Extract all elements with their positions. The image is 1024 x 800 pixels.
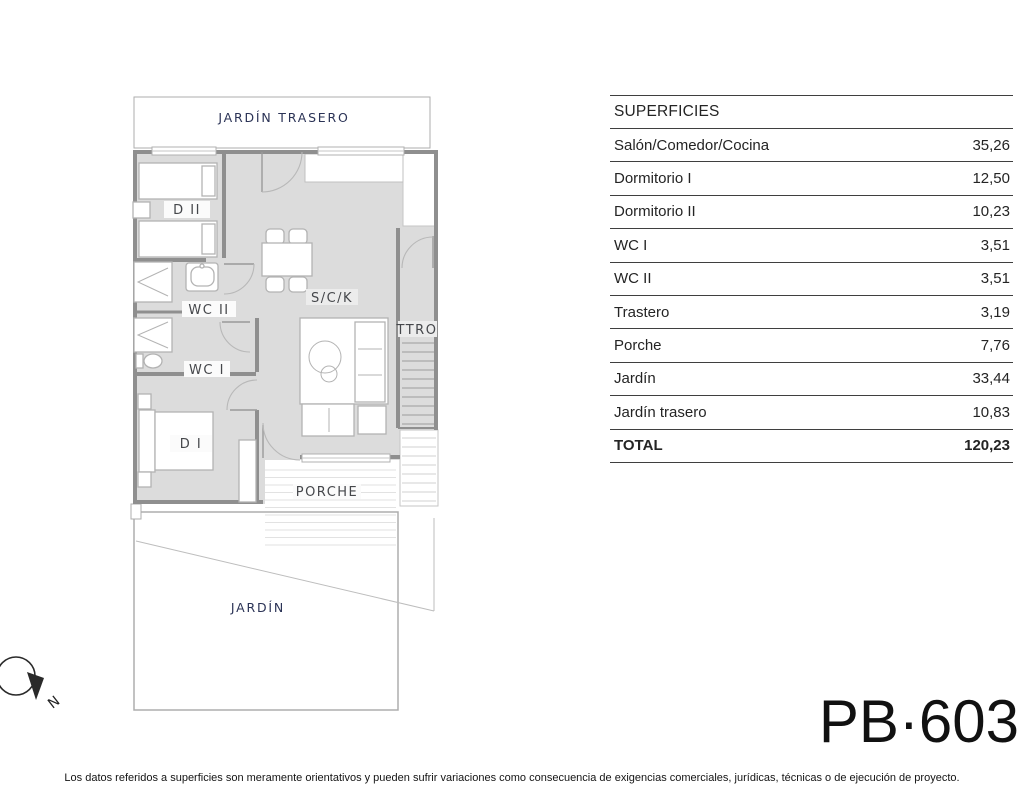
boundary-line bbox=[136, 518, 434, 611]
kitchen-counter bbox=[305, 154, 403, 182]
row-value: 3,19 bbox=[981, 304, 1010, 321]
surface-table: SUPERFICIES Salón/Comedor/Cocina 35,26 D… bbox=[610, 95, 1013, 463]
disclaimer-text: Los datos referidos a superficies son me… bbox=[0, 772, 1024, 784]
row-label: Porche bbox=[614, 337, 662, 354]
table-row: Jardín 33,44 bbox=[610, 362, 1013, 395]
row-value: 12,50 bbox=[972, 170, 1010, 187]
porch-area bbox=[265, 470, 396, 545]
surface-table-header: SUPERFICIES bbox=[610, 95, 1013, 128]
row-label: WC I bbox=[614, 237, 647, 254]
table-row: Dormitorio II 10,23 bbox=[610, 195, 1013, 228]
wc1-label: WC I bbox=[189, 363, 225, 378]
plan-code: PB·603 bbox=[819, 692, 1019, 752]
row-label: Jardín trasero bbox=[614, 404, 707, 421]
table-row: Jardín trasero 10,83 bbox=[610, 395, 1013, 428]
row-label: Dormitorio II bbox=[614, 203, 696, 220]
table-row: WC II 3,51 bbox=[610, 262, 1013, 295]
row-label: Trastero bbox=[614, 304, 669, 321]
row-label: Salón/Comedor/Cocina bbox=[614, 137, 769, 154]
row-label: WC II bbox=[614, 270, 652, 287]
total-label: TOTAL bbox=[614, 437, 663, 454]
row-value: 7,76 bbox=[981, 337, 1010, 354]
row-value: 10,23 bbox=[972, 203, 1010, 220]
porch-label: PORCHE bbox=[296, 485, 359, 500]
table-row: Salón/Comedor/Cocina 35,26 bbox=[610, 128, 1013, 161]
row-value: 3,51 bbox=[981, 270, 1010, 287]
compass-needle-icon bbox=[27, 672, 44, 700]
row-value: 33,44 bbox=[972, 370, 1010, 387]
table-row-total: TOTAL 120,23 bbox=[610, 429, 1013, 463]
living-label: S/C/K bbox=[311, 291, 353, 306]
row-value: 3,51 bbox=[981, 237, 1010, 254]
wardrobe bbox=[239, 440, 256, 502]
bedroom2-label: D II bbox=[173, 203, 201, 218]
wc2-label: WC II bbox=[188, 303, 229, 318]
north-label: N bbox=[45, 693, 63, 712]
table-row: Trastero 3,19 bbox=[610, 295, 1013, 328]
table-row: WC I 3,51 bbox=[610, 228, 1013, 261]
table-row: Dormitorio I 12,50 bbox=[610, 161, 1013, 194]
back-garden-label: JARDÍN TRASERO bbox=[217, 110, 349, 125]
bedroom1-label: D I bbox=[180, 437, 202, 452]
table-row: Porche 7,76 bbox=[610, 328, 1013, 361]
row-label: Dormitorio I bbox=[614, 170, 692, 187]
floor-plan: JARDÍN TRASERO D II WC II WC I D I S/C/K… bbox=[0, 0, 470, 760]
living-furniture bbox=[300, 318, 388, 436]
compass-icon: N bbox=[0, 652, 72, 716]
storage-label: TTRO bbox=[396, 323, 438, 338]
garden-label: JARDÍN bbox=[230, 600, 285, 615]
row-value: 10,83 bbox=[972, 404, 1010, 421]
row-label: Jardín bbox=[614, 370, 656, 387]
total-value: 120,23 bbox=[964, 437, 1010, 454]
surface-table-title: SUPERFICIES bbox=[614, 103, 720, 121]
row-value: 35,26 bbox=[972, 137, 1010, 154]
